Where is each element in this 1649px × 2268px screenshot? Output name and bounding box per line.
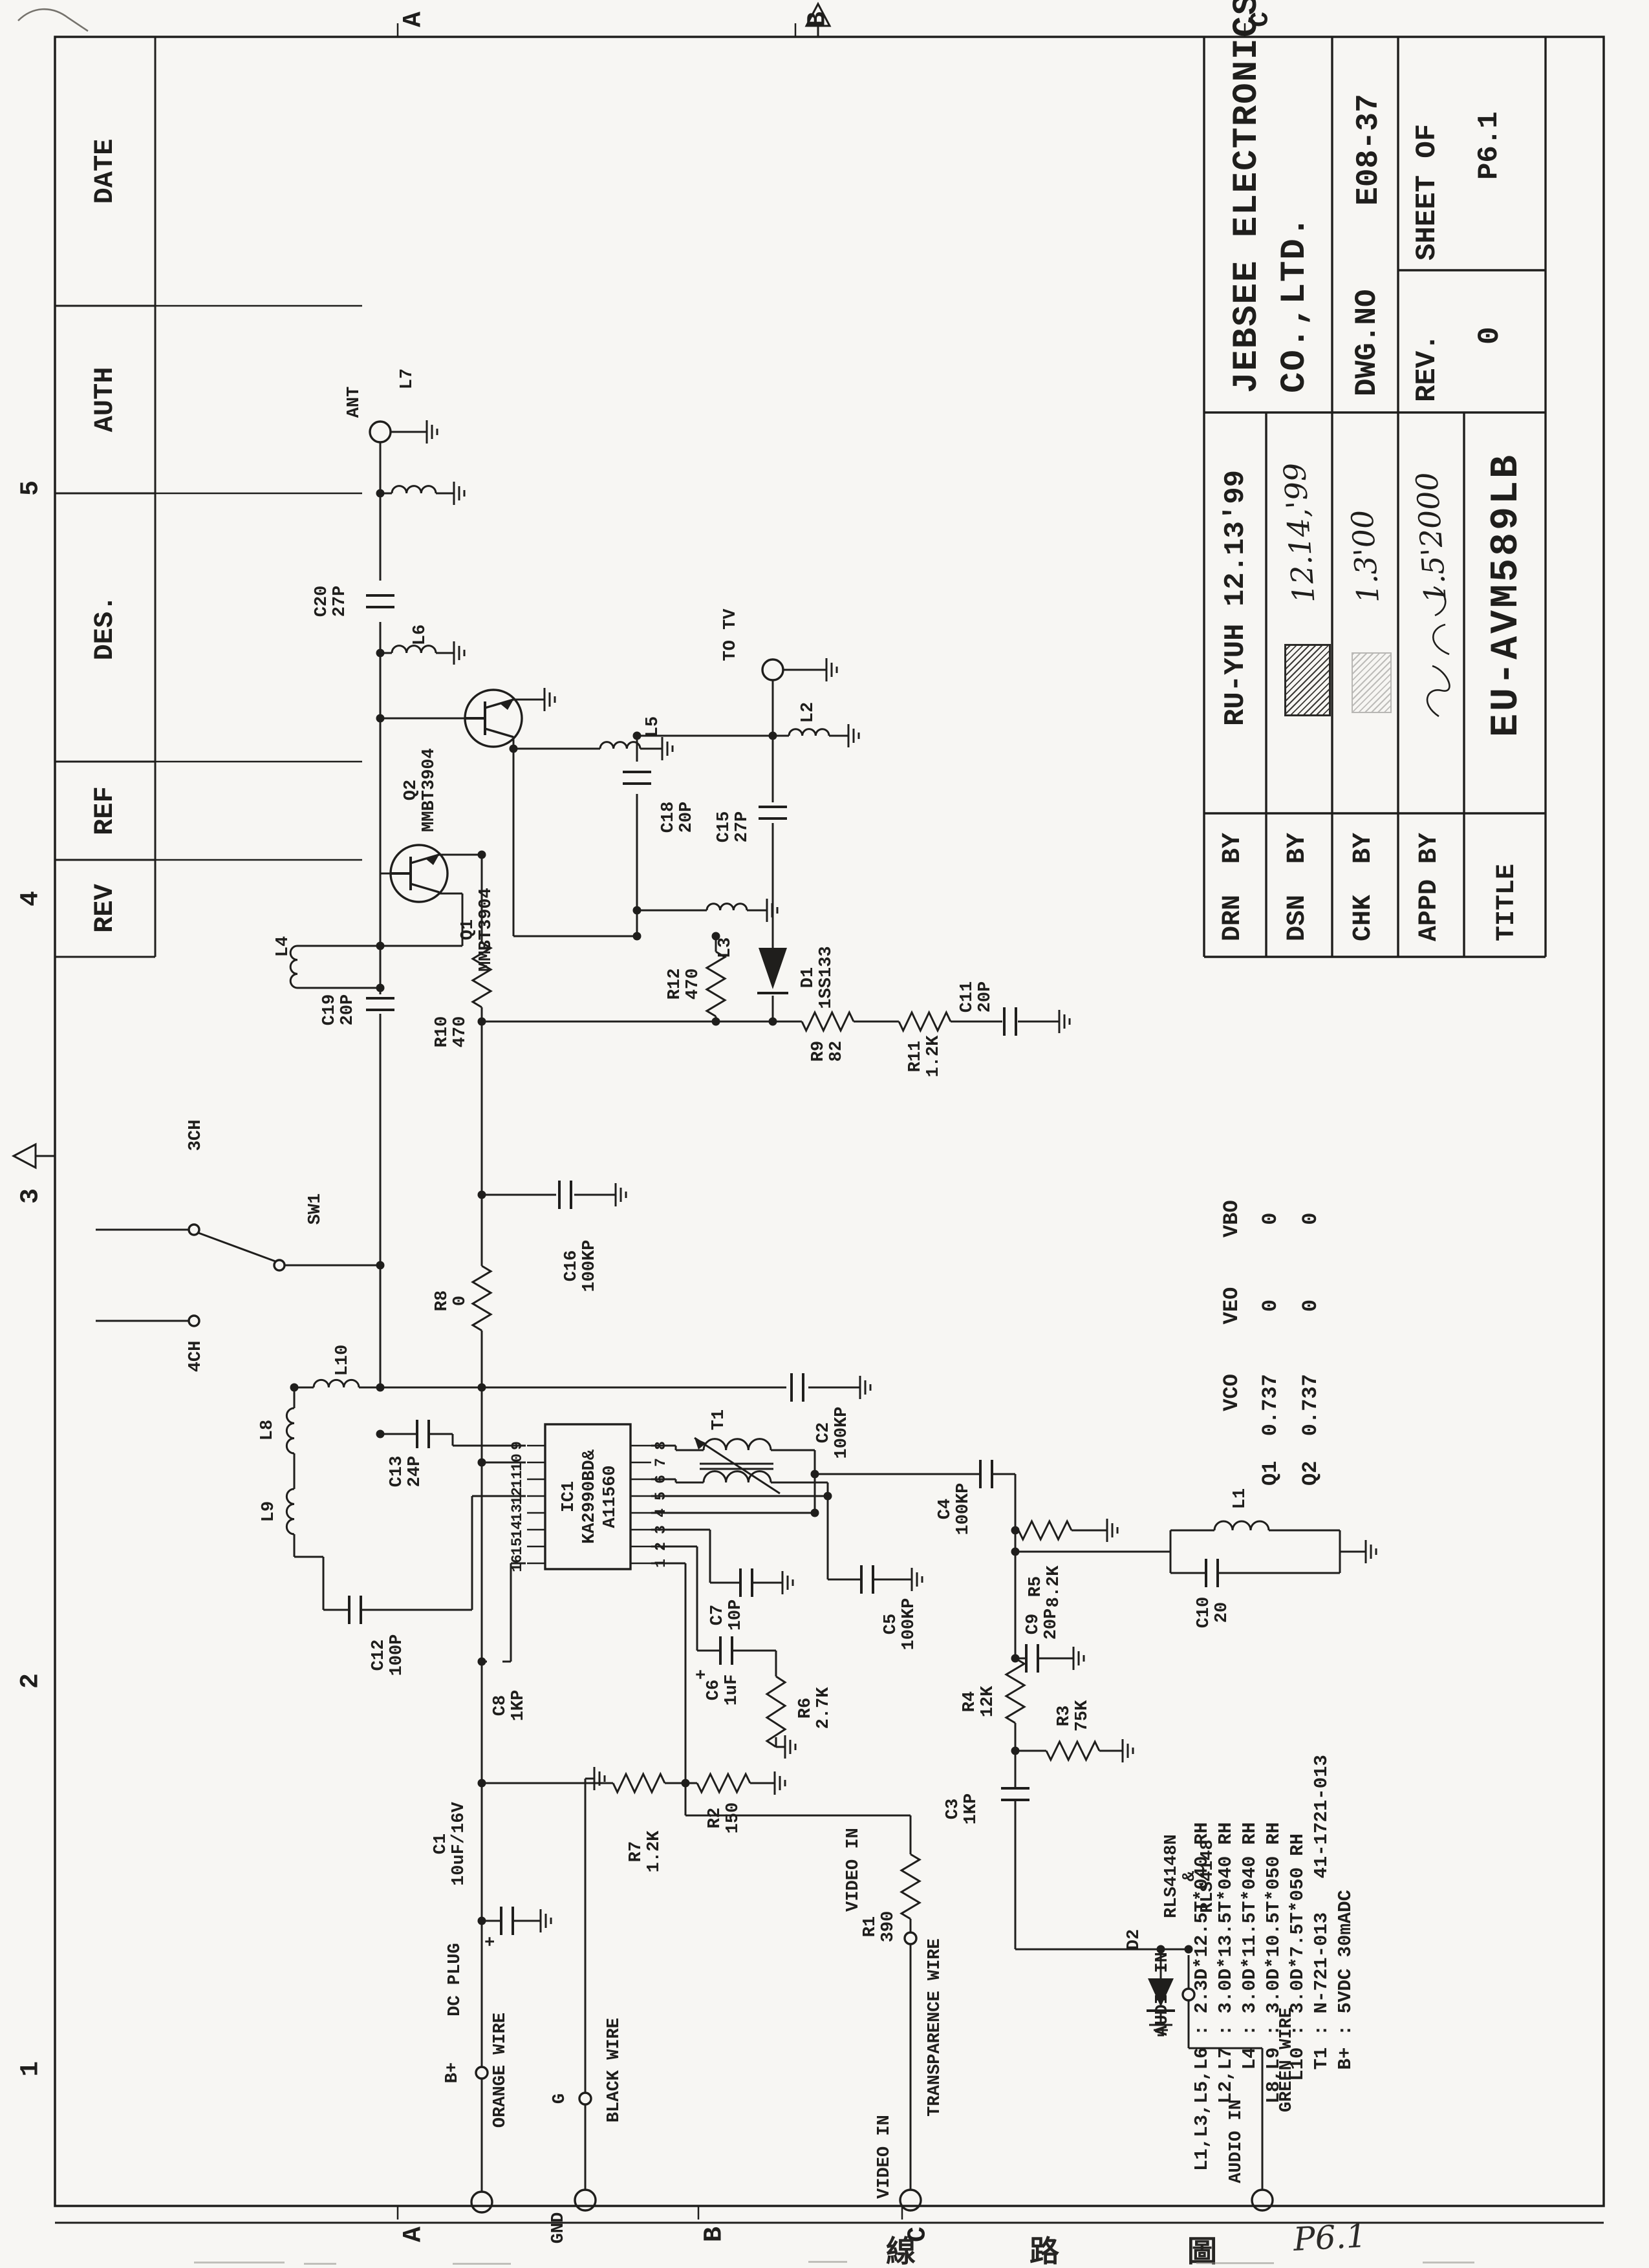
- component-label: D2: [1125, 1929, 1143, 1950]
- component-label: 4CH: [187, 1341, 205, 1373]
- junction-dot: [769, 732, 777, 740]
- junction-dot: [376, 1430, 385, 1439]
- component-label: C7 10P: [709, 1599, 745, 1631]
- component-label: KA2990BD&: [581, 1450, 599, 1544]
- zone-letter: A: [400, 12, 429, 27]
- inductor-symbol: [1214, 1521, 1269, 1530]
- component-label: VIDEO IN: [876, 2115, 894, 2199]
- component-label: L10: [334, 1345, 352, 1376]
- connector-terminal-icon: [471, 2192, 492, 2212]
- component-label: L8: [259, 1420, 277, 1440]
- junction-dot: [811, 1509, 819, 1517]
- capacitor-symbol: [1206, 1559, 1218, 1587]
- zone-letter: B: [804, 12, 833, 27]
- connector-terminal-icon: [1252, 2190, 1273, 2210]
- resistor-symbol: [697, 1774, 750, 1792]
- junction-dot: [633, 906, 641, 915]
- component-label: Q1 MMBT3904: [459, 888, 495, 972]
- junction-dot: [769, 1018, 777, 1026]
- component-label: Q2 MMBT3904: [402, 748, 438, 832]
- component-label: C15 27P: [715, 811, 751, 843]
- zone-letter: A: [400, 2227, 429, 2242]
- ground-icon: [1114, 1739, 1133, 1762]
- capacitor-symbol: [1026, 1644, 1038, 1673]
- junction-dot: [376, 942, 385, 950]
- component-label: C11 20P: [958, 981, 995, 1013]
- junction-dot: [478, 1917, 486, 1925]
- zone-letter: B: [700, 2227, 729, 2242]
- component-label: B+: [444, 2062, 462, 2083]
- ic-pin-number: 10: [509, 1453, 526, 1471]
- component-label: C3 1KP: [944, 1793, 980, 1825]
- junction-dot: [633, 932, 641, 941]
- capacitor-symbol: [501, 1907, 513, 1935]
- component-label: G: [551, 2093, 569, 2104]
- capacitor-symbol: [759, 807, 787, 818]
- component-label: C6 1uF: [705, 1674, 741, 1706]
- junction-dot: [811, 1470, 819, 1479]
- inductor-symbol: [704, 1439, 771, 1450]
- component-label: ORANGE WIRE: [491, 2013, 510, 2128]
- coil-list-line: L8,L9 : 3.0D*10.5T*050 RH: [1263, 1823, 1284, 2172]
- resistor-symbol: [802, 1012, 854, 1031]
- component-label: L1: [1231, 1488, 1249, 1509]
- ground-icon: [532, 1909, 551, 1932]
- inductor-symbol: [314, 1380, 359, 1387]
- zone-number: 4: [17, 891, 46, 906]
- component-label: C8 1KP: [491, 1690, 528, 1722]
- zone-number: 3: [17, 1188, 46, 1204]
- fold-arrow-triangle-icon: [14, 1144, 36, 1168]
- junction-dot: [824, 1492, 832, 1501]
- resistor-symbol: [899, 1012, 951, 1031]
- ground-icon: [535, 688, 555, 711]
- titleblock-row-value: 1.3'00: [1344, 509, 1386, 604]
- ground-icon: [839, 724, 859, 747]
- capacitor-symbol: [559, 1181, 571, 1209]
- capacitor-symbol: [623, 772, 651, 784]
- revision-header-date: DATE: [89, 139, 120, 204]
- titleblock-row-label: APPD BY: [1415, 833, 1444, 941]
- scan-smudge: [1196, 2262, 1274, 2264]
- junction-dot: [510, 745, 518, 753]
- schematic-canvas: [0, 0, 1649, 2268]
- connector-terminal-icon: [370, 422, 391, 442]
- capacitor-symbol: [417, 1420, 429, 1448]
- ground-icon: [1098, 1519, 1117, 1542]
- coil-list-line: L4 : 3.0D*11.5T*040 RH: [1239, 1823, 1260, 2172]
- ic-pin-number: 7: [652, 1458, 669, 1467]
- ground-icon: [607, 1183, 626, 1206]
- ic-pin-number: 16: [509, 1554, 526, 1572]
- scan-smudge: [1423, 2262, 1474, 2263]
- titleblock-sheet-label: SHEET OF: [1411, 124, 1443, 261]
- inductor-symbol: [789, 729, 829, 736]
- junction-dot: [376, 649, 385, 658]
- zone-ticks: [398, 23, 1245, 2220]
- resistor-symbol: [1018, 1521, 1072, 1539]
- component-label: T1: [710, 1409, 728, 1430]
- coil-list-line: L10 : 3.0D*7.5T*050 RH: [1287, 1834, 1308, 2171]
- junction-dot: [1011, 1548, 1020, 1556]
- junction-dot: [478, 1658, 486, 1666]
- titleblock-title-value: EU-AVM589LB: [1485, 453, 1529, 737]
- component-label: SW1: [307, 1193, 325, 1225]
- connector-terminal-icon: [575, 2190, 596, 2210]
- revision-header-ref: REF: [89, 786, 120, 835]
- junction-dot: [633, 732, 641, 740]
- ground-icon: [776, 1735, 795, 1759]
- component-label: C2 100KP: [815, 1406, 851, 1459]
- titleblock-dwg-value: E08-37: [1352, 94, 1386, 206]
- component-label: C4 100KP: [936, 1482, 973, 1535]
- ground-icon: [1357, 1540, 1376, 1563]
- junction-dot: [1011, 1526, 1020, 1535]
- component-label: 3CH: [187, 1120, 205, 1151]
- zone-number: 1: [17, 2061, 46, 2077]
- titleblock-row-label: CHK BY: [1349, 833, 1378, 941]
- inductor-symbol: [707, 904, 747, 910]
- component-label: L6: [411, 625, 429, 645]
- ground-icon: [817, 658, 837, 681]
- ic-pin-number: 15: [509, 1537, 526, 1556]
- component-label: L9: [260, 1501, 278, 1522]
- component-label: R3 75K: [1055, 1700, 1092, 1732]
- ic-pin-number: 12: [509, 1487, 526, 1505]
- ground-icon: [851, 1376, 870, 1399]
- component-label: L2: [799, 702, 817, 723]
- scanned-schematic-page: 54321AABBCCREVREFDES.AUTHDATE91011121314…: [0, 0, 1649, 2268]
- bias-table-header: VCO VEO VBO: [1220, 1200, 1244, 1486]
- resistor-symbol: [1046, 1742, 1099, 1760]
- bottom-caption-char: 線: [886, 2228, 916, 2268]
- titleblock-dwg-label: DWG.NO: [1350, 289, 1384, 396]
- junction-dot: [376, 1384, 385, 1392]
- component-label: +: [482, 1936, 501, 1947]
- revision-header-auth: AUTH: [89, 367, 120, 433]
- component-label: C20 27P: [313, 586, 349, 617]
- resistor-symbol: [767, 1676, 785, 1747]
- wire: [199, 1233, 275, 1261]
- resistor-symbol: [901, 1854, 920, 1919]
- component-label: C18 20P: [660, 802, 696, 833]
- capacitor-symbol: [720, 1636, 732, 1665]
- component-label: L3: [717, 937, 735, 958]
- component-label: L4: [274, 936, 292, 957]
- component-label: ANT: [345, 387, 363, 418]
- ic-pin-number: 11: [509, 1470, 526, 1488]
- resistor-symbol: [613, 1774, 665, 1792]
- ground-icon: [758, 899, 777, 922]
- capacitor-symbol: [861, 1565, 873, 1594]
- component-label: C5 100KP: [882, 1598, 918, 1650]
- zone-number: 5: [17, 480, 46, 496]
- ground-icon: [1050, 1010, 1070, 1033]
- scan-smudge: [304, 2263, 336, 2265]
- ground-icon: [445, 482, 464, 505]
- component-label: C12 100P: [370, 1634, 406, 1676]
- ic-pin-number: 1: [652, 1559, 669, 1568]
- junction-dot: [1011, 1747, 1020, 1755]
- component-label: C1 10uF/16V: [432, 1802, 468, 1886]
- coil-list-line: B+ : 5VDC 30mADC: [1335, 1890, 1356, 2171]
- bias-table-row: Q1 0.737 0 0: [1258, 1213, 1282, 1486]
- scan-smudge: [453, 2263, 511, 2265]
- capacitor-symbol: [740, 1568, 752, 1597]
- titleblock-row-label: DRN BY: [1218, 833, 1247, 941]
- terminal-circle-icon: [274, 1260, 285, 1270]
- component-label: BLACK WIRE: [605, 2018, 623, 2123]
- component-label: TRANSPARENCE WIRE: [926, 1938, 944, 2116]
- component-label: R9 82: [810, 1041, 846, 1062]
- coil-list-line: T1 : N-721-013 41-1721-013: [1311, 1755, 1332, 2171]
- revision-header-des: DES.: [89, 595, 120, 661]
- junction-dot: [376, 1261, 385, 1270]
- titleblock-title-label: TITLE: [1493, 864, 1522, 941]
- component-label: GND: [550, 2212, 568, 2244]
- terminal-circle-icon: [476, 2067, 488, 2079]
- terminal-circle-icon: [189, 1225, 199, 1235]
- ground-icon: [445, 641, 464, 665]
- titleblock-row-value: RU-YUH 12.13'99: [1220, 470, 1252, 726]
- component-label: L7: [398, 369, 416, 389]
- connector-terminal-icon: [900, 2190, 921, 2210]
- component-label: AUDIO IN: [1154, 1952, 1172, 2036]
- inductor-symbol: [392, 486, 436, 493]
- component-label: L5: [644, 716, 662, 737]
- component-label: C16 100KP: [563, 1239, 599, 1292]
- terminal-circle-icon: [905, 1932, 916, 1944]
- junction-dot: [478, 1384, 486, 1392]
- component-label: R5 8.2K: [1027, 1566, 1063, 1608]
- ground-icon: [1064, 1647, 1084, 1670]
- component-label: R8 0: [433, 1290, 469, 1311]
- inductor-symbol: [286, 1489, 294, 1534]
- handwritten-scrawl: [1427, 587, 1449, 716]
- ground-icon: [585, 1767, 605, 1790]
- titleblock-rev-value: 0: [1473, 326, 1507, 345]
- resistor-symbol: [707, 952, 725, 1016]
- terminal-circle-icon: [189, 1316, 199, 1326]
- ic-pin-number: 4: [652, 1508, 669, 1517]
- capacitor-symbol: [1001, 1788, 1029, 1800]
- ground-icon: [653, 737, 673, 760]
- component-label: C13 24P: [388, 1456, 424, 1488]
- ground-icon: [418, 420, 437, 444]
- handwritten-page-note: P6.1: [1293, 2217, 1368, 2258]
- terminal-circle-icon: [579, 2093, 591, 2104]
- component-label: R6 2.7K: [797, 1687, 833, 1729]
- scan-smudge: [808, 2261, 847, 2263]
- component-label: VIDEO IN: [845, 1828, 863, 1912]
- component-label: R7 1.2K: [627, 1831, 663, 1873]
- approval-stamp-icon: [1352, 652, 1392, 713]
- titleblock-row-label: DSN BY: [1283, 833, 1312, 941]
- ic-pin-number: 5: [652, 1492, 669, 1501]
- component-label: R11 1.2K: [907, 1036, 943, 1078]
- component-label: R10 470: [433, 1016, 469, 1048]
- component-label: C10 20: [1195, 1597, 1231, 1629]
- ic-pin-number: 14: [509, 1521, 526, 1539]
- ic-pin-number: 3: [652, 1525, 669, 1534]
- component-label: R4 12K: [961, 1686, 997, 1718]
- revision-strip-tails: [155, 306, 362, 860]
- junction-dot: [376, 489, 385, 498]
- capacitor-symbol: [349, 1596, 361, 1624]
- inductor-symbol: [600, 742, 640, 749]
- resistor-symbol: [473, 1266, 491, 1331]
- component-label: R1 390: [861, 1911, 898, 1943]
- coil-list-line: L2,L7 : 3.0D*13.5T*040 RH: [1215, 1823, 1236, 2172]
- ic-pin-number: 9: [509, 1441, 526, 1450]
- component-label: A11560: [601, 1465, 620, 1528]
- inductor-symbol: [392, 646, 436, 653]
- capacitor-symbol: [366, 998, 394, 1010]
- approval-stamp-icon: [1284, 644, 1331, 716]
- capacitor-symbol: [1004, 1007, 1016, 1036]
- ic-pin-number: 13: [509, 1504, 526, 1522]
- scan-smudge: [194, 2262, 285, 2263]
- junction-dot: [478, 1459, 486, 1467]
- component-label: DC PLUG: [446, 1943, 464, 2016]
- component-label: C9 20P: [1024, 1609, 1061, 1640]
- component-label: TO TV: [722, 608, 740, 661]
- inductor-symbol: [286, 1408, 294, 1453]
- component-label: IC1: [560, 1481, 578, 1513]
- ic-pin-number: 2: [652, 1542, 669, 1551]
- coil-list-line: L1,L3,L5,L6 : 2.3D*12.5T*040 RH: [1191, 1823, 1212, 2172]
- zone-number: 2: [17, 1673, 46, 1689]
- transformer-tuning-arrow: [695, 1438, 780, 1493]
- ground-icon: [903, 1568, 922, 1591]
- ground-icon: [773, 1571, 793, 1594]
- junction-dot: [478, 1191, 486, 1199]
- capacitor-symbol: [792, 1373, 803, 1402]
- component-label: R2 150: [706, 1803, 742, 1834]
- junction-dot: [290, 1384, 299, 1392]
- titleblock-company-name: CO.,LTD.: [1275, 215, 1315, 393]
- drawing-sheet: 54321AABBCCREVREFDES.AUTHDATE91011121314…: [0, 0, 1649, 2268]
- junction-dot: [478, 1779, 486, 1788]
- ground-icon: [766, 1771, 785, 1795]
- bottom-caption-char: 路: [1029, 2228, 1059, 2268]
- junction-dot: [376, 714, 385, 723]
- titleblock-sheet-value: P6.1: [1473, 111, 1505, 180]
- component-label: R12 470: [666, 968, 702, 1000]
- titleblock-company-name: JEBSEE ELECTRONICS: [1227, 0, 1267, 393]
- bias-table-row: Q2 0.737 0 0: [1299, 1213, 1322, 1486]
- diode-symbol: [759, 948, 787, 989]
- junction-dot: [712, 1018, 720, 1026]
- component-label: C19 20P: [321, 994, 357, 1026]
- junction-dot: [376, 984, 385, 992]
- connector-terminal-icon: [762, 659, 783, 680]
- revision-header-rev: REV: [89, 884, 120, 933]
- junction-dot: [1011, 1654, 1020, 1663]
- titleblock-rev-label: REV.: [1411, 334, 1443, 402]
- corner-pen-tick: [13, 3, 103, 41]
- ic-pin-number: 8: [652, 1441, 669, 1450]
- junction-dot: [682, 1779, 690, 1788]
- ic-pin-number: 6: [652, 1475, 669, 1484]
- resistor-symbol: [1006, 1658, 1024, 1723]
- junction-dot: [478, 1018, 486, 1026]
- capacitor-symbol: [366, 595, 394, 607]
- component-label: D1 1SS133: [799, 946, 835, 1009]
- capacitor-symbol: [980, 1460, 992, 1488]
- junction-dot: [478, 851, 486, 859]
